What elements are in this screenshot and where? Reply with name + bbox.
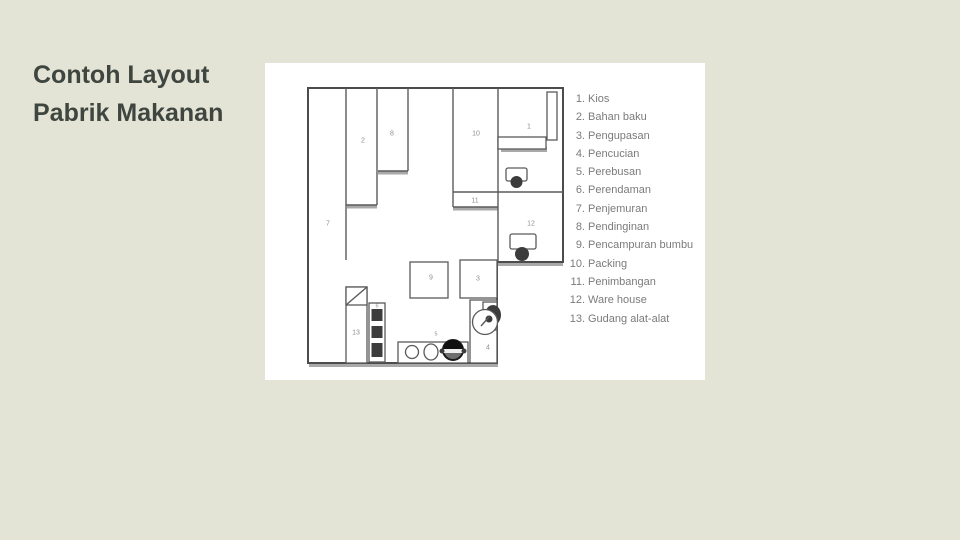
room-label-11: 11 <box>471 198 478 205</box>
legend-num: 6. <box>567 181 585 199</box>
sink-upper <box>506 168 527 188</box>
legend-num: 3. <box>567 127 585 145</box>
legend-item-10: 10.Packing <box>567 255 693 273</box>
kios-counter <box>498 137 547 152</box>
page-title: Contoh Layout Pabrik Makanan <box>33 56 223 132</box>
soaking-rack <box>369 303 385 362</box>
legend-item-4: 4.Pencucian <box>567 145 693 163</box>
title-line-1: Contoh Layout <box>33 56 223 94</box>
legend-num: 4. <box>567 145 585 163</box>
legend-label: Kios <box>588 90 609 108</box>
room-label-9: 9 <box>429 275 433 282</box>
room-label-3: 3 <box>476 276 480 283</box>
legend-num: 1. <box>567 90 585 108</box>
boiling-counter <box>398 340 468 363</box>
title-line-2: Pabrik Makanan <box>33 94 223 132</box>
legend-num: 9. <box>567 236 585 254</box>
kios-display-case <box>547 92 557 140</box>
room-label-2: 2 <box>361 138 365 145</box>
legend-num: 5. <box>567 163 585 181</box>
legend-item-9: 9.Pencampuran bumbu <box>567 236 693 254</box>
room-label-4: 4 <box>486 345 490 352</box>
room-label-13: 13 <box>352 330 360 337</box>
legend-label: Packing <box>588 255 627 273</box>
slide: { "slide": { "title_line1": "Contoh Layo… <box>0 0 960 540</box>
room-label-8: 8 <box>390 131 394 138</box>
legend-num: 8. <box>567 218 585 236</box>
room-label-1: 1 <box>527 124 531 131</box>
room-label-6: 6 <box>375 304 378 310</box>
legend-item-11: 11.Penimbangan <box>567 273 693 291</box>
legend-label: Perebusan <box>588 163 641 181</box>
legend-item-2: 2.Bahan baku <box>567 108 693 126</box>
room-label-12: 12 <box>527 221 535 228</box>
legend-item-5: 5.Perebusan <box>567 163 693 181</box>
layout-image-panel: 1 2 3 4 5 6 7 8 9 10 11 12 13 1.Kios 2.B… <box>265 63 705 380</box>
room-label-5: 5 <box>434 332 437 338</box>
legend-label: Pengupasan <box>588 127 650 145</box>
legend-label: Ware house <box>588 291 647 309</box>
legend-label: Pendinginan <box>588 218 649 236</box>
legend-label: Pencucian <box>588 145 639 163</box>
legend-item-12: 12.Ware house <box>567 291 693 309</box>
legend-num: 7. <box>567 200 585 218</box>
legend-label: Perendaman <box>588 181 651 199</box>
sink-lower <box>510 234 536 261</box>
legend-label: Gudang alat-alat <box>588 310 669 328</box>
legend-item-8: 8.Pendinginan <box>567 218 693 236</box>
legend-num: 10. <box>567 255 585 273</box>
legend-label: Penjemuran <box>588 200 647 218</box>
legend-item-6: 6.Perendaman <box>567 181 693 199</box>
legend-num: 12. <box>567 291 585 309</box>
room-label-10: 10 <box>472 131 480 138</box>
legend-label: Pencampuran bumbu <box>588 236 693 254</box>
legend-num: 13. <box>567 310 585 328</box>
legend-num: 2. <box>567 108 585 126</box>
legend-item-1: 1.Kios <box>567 90 693 108</box>
legend-item-13: 13.Gudang alat-alat <box>567 310 693 328</box>
legend: 1.Kios 2.Bahan baku 3.Pengupasan 4.Pencu… <box>567 90 693 328</box>
legend-num: 11. <box>567 273 585 291</box>
legend-item-7: 7.Penjemuran <box>567 200 693 218</box>
room-label-7: 7 <box>326 221 330 228</box>
legend-label: Bahan baku <box>588 108 647 126</box>
legend-label: Penimbangan <box>588 273 656 291</box>
legend-item-3: 3.Pengupasan <box>567 127 693 145</box>
